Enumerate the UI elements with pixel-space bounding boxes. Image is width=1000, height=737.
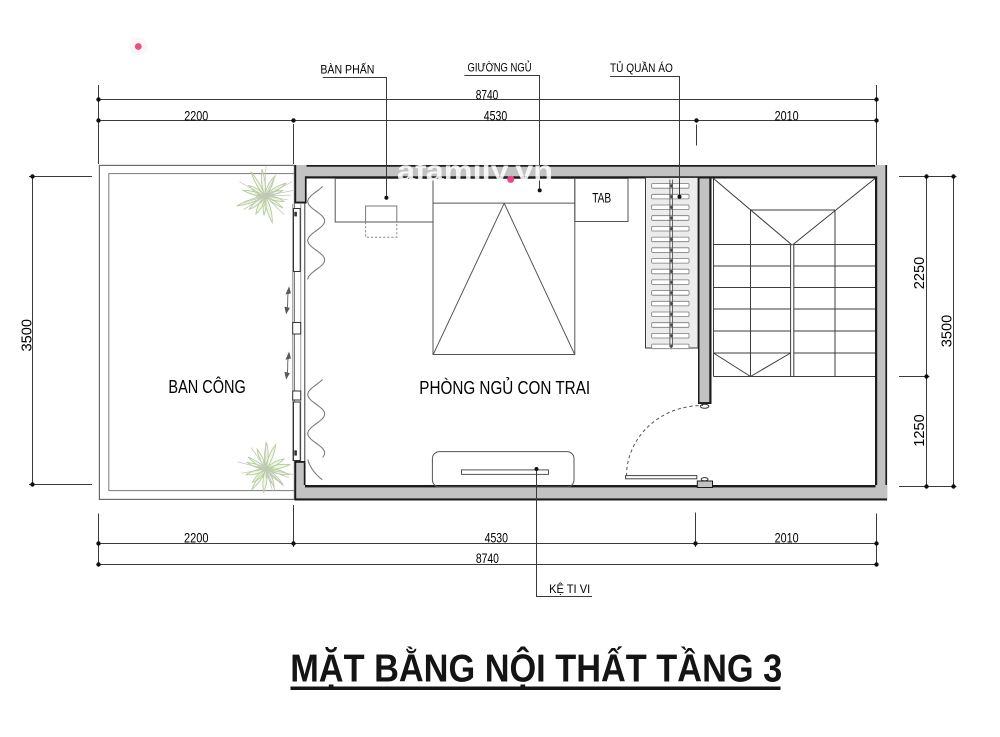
svg-text:BÀN PHẤN: BÀN PHẤN <box>320 61 374 76</box>
svg-text:1250: 1250 <box>911 414 928 447</box>
svg-text:3500: 3500 <box>18 319 35 352</box>
svg-text:4530: 4530 <box>485 530 509 546</box>
svg-text:BAN CÔNG: BAN CÔNG <box>168 376 245 397</box>
svg-text:3500: 3500 <box>939 315 956 348</box>
svg-text:MẶT BẰNG NỘI THẤT TẦNG 3: MẶT BẰNG NỘI THẤT TẦNG 3 <box>290 646 782 691</box>
svg-text:PHÒNG NGỦ CON TRAI: PHÒNG NGỦ CON TRAI <box>419 377 590 398</box>
svg-text:2250: 2250 <box>911 257 928 290</box>
svg-text:2200: 2200 <box>184 530 209 546</box>
svg-text:4530: 4530 <box>484 107 508 123</box>
svg-text:2010: 2010 <box>775 107 799 123</box>
svg-text:8740: 8740 <box>476 550 499 566</box>
svg-text:TỦ QUẦN ÁO: TỦ QUẦN ÁO <box>610 60 673 75</box>
svg-text:TAB: TAB <box>592 191 611 206</box>
svg-text:KỆ TI VI: KỆ TI VI <box>549 581 590 596</box>
svg-text:GIƯỜNG NGỦ: GIƯỜNG NGỦ <box>468 60 532 75</box>
svg-text:2200: 2200 <box>184 107 208 123</box>
svg-text:8740: 8740 <box>476 86 499 102</box>
svg-text:2010: 2010 <box>775 530 799 546</box>
svg-text:afamily.vn: afamily.vn <box>397 155 553 187</box>
